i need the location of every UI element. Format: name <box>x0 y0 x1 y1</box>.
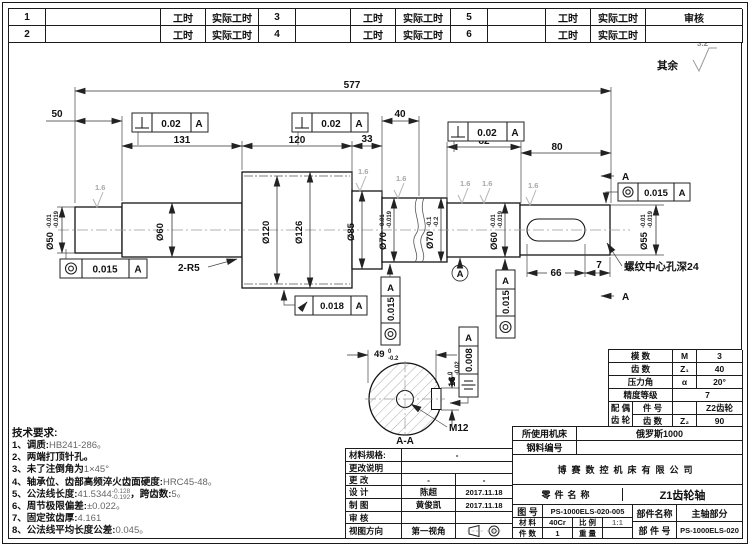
svg-text:1.6: 1.6 <box>482 179 492 188</box>
tech-item: 2、两端打顶针孔。 <box>12 452 264 464</box>
part-name-row: 零件名称 Z1齿轮轴 <box>513 485 743 505</box>
machine-row: 所使用机床 俄罗斯1000 <box>513 427 743 441</box>
qty-label: 件 数 <box>513 528 543 539</box>
rev-hours-label: 工时 <box>546 9 591 26</box>
scale-label: 比 例 <box>573 518 603 528</box>
rev-actual-hours-label: 实际工时 <box>206 9 259 26</box>
change-note-label: 更改说明 <box>346 462 402 474</box>
dimension-49: 49 0 -0.2 <box>347 349 457 362</box>
tech-item: 1、调质:HB241-286。 <box>12 440 264 452</box>
draft-label: 制 图 <box>346 499 402 512</box>
dimension-80: 80 <box>521 142 611 153</box>
svg-text:A-A: A-A <box>396 436 414 447</box>
svg-text:Ø60: Ø60 <box>489 232 500 250</box>
svg-text:80: 80 <box>551 142 563 153</box>
bottom-rows: 图 号 PS-1000ELS-020-005 材 料 40Cr 比 例 1:1 … <box>513 505 743 539</box>
svg-text:Ø60: Ø60 <box>155 223 166 241</box>
svg-text:A: A <box>134 265 141 276</box>
svg-text:A: A <box>387 283 394 294</box>
tech-item: 6、周节极限偏差:±0.022。 <box>12 501 264 513</box>
svg-text:-0.019: -0.019 <box>54 210 60 228</box>
svg-text:1.6: 1.6 <box>396 174 406 183</box>
teeth-symbol: Z₁ <box>673 363 697 376</box>
svg-text:A: A <box>622 172 629 183</box>
steel-row: 钢料编号 <box>513 441 743 455</box>
change-value-1: - <box>402 474 456 486</box>
datum-a: A <box>452 258 468 281</box>
svg-text:1.6: 1.6 <box>460 179 470 188</box>
draft-date: 2017.11.18 <box>456 499 513 512</box>
title-block: 所使用机床 俄罗斯1000 钢料编号 博赛数控机床有限公司 零件名称 Z1齿轮轴… <box>512 426 742 539</box>
svg-text:Ø70: Ø70 <box>425 231 436 249</box>
assembly-name-label: 部件名称 <box>633 505 677 522</box>
rev-blank <box>646 26 743 43</box>
svg-text:A: A <box>511 128 518 139</box>
dimension-7: 7 <box>585 260 610 273</box>
engineering-drawing-sheet: { "top_table": { "rows": [ ["1","","工时",… <box>0 0 750 546</box>
rest-roughness: 其余 3.2 <box>657 39 717 72</box>
svg-text:A: A <box>622 292 629 303</box>
part-no-label: 件 号 <box>633 402 673 415</box>
svg-text:16: 16 <box>447 376 458 387</box>
rev-num: 1 <box>9 9 46 26</box>
check-date <box>456 512 513 524</box>
svg-text:A: A <box>355 119 362 130</box>
svg-text:Ø55: Ø55 <box>639 231 650 250</box>
svg-text:-0.01: -0.01 <box>491 214 497 228</box>
rev-blank <box>46 26 161 43</box>
svg-text:Ø126: Ø126 <box>294 221 305 244</box>
svg-text:0.02: 0.02 <box>321 119 341 130</box>
svg-text:其余: 其余 <box>657 59 678 72</box>
rev-num: 2 <box>9 26 46 43</box>
roughness-mark-icon: 1.6 <box>93 183 105 207</box>
module-symbol: M <box>673 350 697 363</box>
dimension-dia55: Ø55 -0.01 -0.019 <box>639 205 656 255</box>
part-name-label: 零件名称 <box>513 488 623 501</box>
machine-label: 所使用机床 <box>513 427 577 440</box>
change-note-value <box>402 462 513 474</box>
svg-text:0.008: 0.008 <box>464 348 475 372</box>
svg-text:0.015: 0.015 <box>501 290 512 314</box>
svg-text:Ø85: Ø85 <box>346 222 357 241</box>
svg-text:A: A <box>502 276 509 287</box>
svg-text:50: 50 <box>51 109 63 120</box>
svg-text:0.015: 0.015 <box>386 297 397 321</box>
design-date: 2017.11.18 <box>456 486 513 499</box>
svg-text:131: 131 <box>174 135 191 146</box>
svg-text:A: A <box>465 333 472 344</box>
section-arrow-top: A <box>601 172 629 183</box>
tech-item: 5、公法线长度:41.5344-0.128-0.192，跨齿数:5。 <box>12 489 264 501</box>
drawing-no-value: PS-1000ELS-020-005 <box>543 505 633 518</box>
assembly-name-value: 主轴部分 <box>677 505 742 522</box>
design-label: 设 计 <box>346 486 402 499</box>
module-label: 模 数 <box>609 350 673 363</box>
weight-label: 重 量 <box>573 528 603 539</box>
rev-blank <box>296 26 351 43</box>
rev-hours-label: 工时 <box>161 9 206 26</box>
svg-text:577: 577 <box>344 80 361 91</box>
svg-text:Ø70: Ø70 <box>378 232 389 250</box>
view-direction-label: 视图方向 <box>346 524 402 539</box>
part-no-value: Z2齿轮 <box>697 402 743 415</box>
fcf-concentricity-v2: A 0.015 <box>496 259 515 338</box>
rev-num: 3 <box>259 9 296 26</box>
rev-actual-hours-label: 实际工时 <box>396 26 451 43</box>
svg-text:1.6: 1.6 <box>358 167 368 176</box>
svg-text:2-R5: 2-R5 <box>178 263 200 274</box>
view-direction-value: 第一视角 <box>402 524 456 539</box>
svg-text:7: 7 <box>596 260 602 271</box>
svg-text:-0.02: -0.02 <box>455 361 461 375</box>
change-value-2: - <box>456 474 513 486</box>
svg-text:-0.019: -0.019 <box>648 210 654 228</box>
pressure-angle-symbol: α <box>673 376 697 389</box>
roughness-mark-icon: 1.6 <box>480 179 492 203</box>
fcf-concentricity-right: 0.015 A <box>606 183 690 203</box>
check-label: 审 核 <box>346 512 402 524</box>
dimension-40: 40 <box>382 109 419 121</box>
fcf-runout: 0.018 A <box>284 290 367 315</box>
svg-text:-0.2: -0.2 <box>434 216 440 227</box>
svg-text:-0.01: -0.01 <box>47 214 53 228</box>
change-label: 更 改 <box>346 474 402 486</box>
fcf-perpendicularity-1: 0.02 A <box>132 113 208 145</box>
svg-text:-0.01: -0.01 <box>641 214 647 228</box>
mating-gear-label: 配 偶齿 轮 <box>609 402 633 427</box>
rev-blank <box>46 9 161 26</box>
svg-text:66: 66 <box>550 268 562 279</box>
tech-item: 4、轴承位、齿部高频淬火齿面硬度:HRC45-48。 <box>12 477 264 489</box>
svg-text:0: 0 <box>388 349 392 355</box>
svg-text:0: 0 <box>448 371 454 375</box>
svg-text:0.02: 0.02 <box>477 128 497 139</box>
fcf-concentricity-v1: A 0.015 <box>381 264 400 345</box>
dimension-577: 577 <box>75 80 611 91</box>
qty-value: 1 <box>543 528 573 539</box>
first-angle-circles-icon <box>487 525 501 537</box>
rev-blank <box>488 26 546 43</box>
svg-text:-0.019: -0.019 <box>387 210 393 228</box>
rev-actual-hours-label: 实际工时 <box>591 26 646 43</box>
svg-text:A: A <box>356 301 363 312</box>
tech-item: 3、未了注倒角为1×45° <box>12 464 264 476</box>
projection-symbols <box>456 524 513 539</box>
rev-actual-hours-label: 实际工时 <box>396 9 451 26</box>
pressure-angle-label: 压力角 <box>609 376 673 389</box>
module-value: 3 <box>697 350 743 363</box>
draft-name: 黄俊凯 <box>402 499 456 512</box>
rev-num: 6 <box>451 26 488 43</box>
teeth-label: 齿 数 <box>609 363 673 376</box>
rev-hours-label: 工时 <box>546 26 591 43</box>
tech-title: 技术要求: <box>12 427 264 440</box>
roughness-mark-icon: 1.6 <box>458 179 470 203</box>
tech-item: 8、公法线平均长度公差:0.045。 <box>12 525 264 537</box>
dimension-120: 120 <box>242 135 352 146</box>
material-label: 材 料 <box>513 518 543 528</box>
roughness-mark-icon: 1.6 <box>394 174 406 198</box>
svg-text:0.02: 0.02 <box>161 119 181 130</box>
rev-hours-label: 工时 <box>351 26 396 43</box>
svg-text:Ø50: Ø50 <box>45 232 56 250</box>
material-value: 40Cr <box>543 518 573 528</box>
approval-table: 材料规格: - 更改说明 更 改 - - 设 计 陈超 2017.11.18 制… <box>345 448 512 539</box>
design-name: 陈超 <box>402 486 456 499</box>
steel-no-label: 钢料编号 <box>513 441 577 454</box>
fillet-note: 2-R5 <box>178 259 237 274</box>
rev-actual-hours-label: 实际工时 <box>206 26 259 43</box>
part-no-symbol <box>673 402 697 415</box>
rev-hours-label: 工时 <box>351 9 396 26</box>
rev-blank <box>296 9 351 26</box>
check-name <box>402 512 456 524</box>
svg-text:40: 40 <box>394 109 406 120</box>
svg-text:A: A <box>457 269 464 280</box>
accuracy-grade-value: 7 <box>673 389 743 402</box>
dimension-131: 131 <box>122 135 242 146</box>
svg-text:A: A <box>195 119 202 130</box>
pressure-angle-value: 20° <box>697 376 743 389</box>
svg-text:0.015: 0.015 <box>92 265 117 276</box>
svg-text:-0.01: -0.01 <box>380 214 386 228</box>
part-name-value: Z1齿轮轴 <box>623 487 742 503</box>
rev-hours-label: 工时 <box>161 26 206 43</box>
revision-table: 1 工时 实际工时 3 工时 实际工时 5 工时 实际工时 审核 2 工时 实际… <box>8 8 742 43</box>
svg-text:Ø120: Ø120 <box>261 221 272 244</box>
weight-value <box>603 528 633 539</box>
dimension-50: 50 <box>46 109 122 121</box>
scale-value: 1:1 <box>603 518 633 528</box>
rev-blank <box>488 9 546 26</box>
svg-text:120: 120 <box>289 135 306 146</box>
assembly-no-value: PS-1000ELS-020 <box>677 522 742 539</box>
svg-text:-0.2: -0.2 <box>388 356 399 362</box>
fcf-perpendicularity-3: 0.02 A <box>448 122 524 152</box>
dimension-33: 33 <box>352 134 382 146</box>
rev-num: 4 <box>259 26 296 43</box>
assembly-no-label: 部 件 号 <box>633 522 677 539</box>
review-label: 审核 <box>646 9 743 26</box>
svg-text:33: 33 <box>361 134 373 145</box>
svg-text:49: 49 <box>374 349 385 360</box>
tech-item: 7、固定弦齿厚:4.161 <box>12 513 264 525</box>
teeth-value: 40 <box>697 363 743 376</box>
machine-value: 俄罗斯1000 <box>577 427 742 440</box>
svg-text:0.015: 0.015 <box>644 188 668 199</box>
svg-text:1.6: 1.6 <box>95 183 105 192</box>
gear-parameter-table: 模 数 M 3 齿 数 Z₁ 40 压力角 α 20° 精度等级 7 配 偶齿 … <box>608 349 742 427</box>
technical-requirements: 技术要求: 1、调质:HB241-286。 2、两端打顶针孔。 3、未了注倒角为… <box>12 427 264 538</box>
drawing-no-label: 图 号 <box>513 505 543 518</box>
roughness-mark-icon: 1.6 <box>526 181 538 205</box>
rev-num: 5 <box>451 9 488 26</box>
accuracy-grade-label: 精度等级 <box>609 389 673 402</box>
svg-text:螺纹中心孔深24: 螺纹中心孔深24 <box>624 260 699 273</box>
rev-actual-hours-label: 实际工时 <box>591 9 646 26</box>
section-arrow-bottom: A <box>601 292 629 303</box>
svg-text:-0.019: -0.019 <box>498 210 504 228</box>
svg-text:-0.1: -0.1 <box>427 216 433 227</box>
company-name: 博赛数控机床有限公司 <box>513 455 743 485</box>
dimension-66: 66 <box>527 266 585 279</box>
material-spec-label: 材料规格: <box>346 449 402 462</box>
roughness-mark-icon: 1.6 <box>356 167 368 191</box>
svg-text:1.6: 1.6 <box>528 181 538 190</box>
svg-text:0.018: 0.018 <box>320 301 344 312</box>
first-angle-cone-icon <box>467 525 483 537</box>
thread-note: 螺纹中心孔深24 <box>607 243 699 273</box>
material-spec-value: - <box>402 449 513 462</box>
svg-text:A: A <box>679 188 686 199</box>
